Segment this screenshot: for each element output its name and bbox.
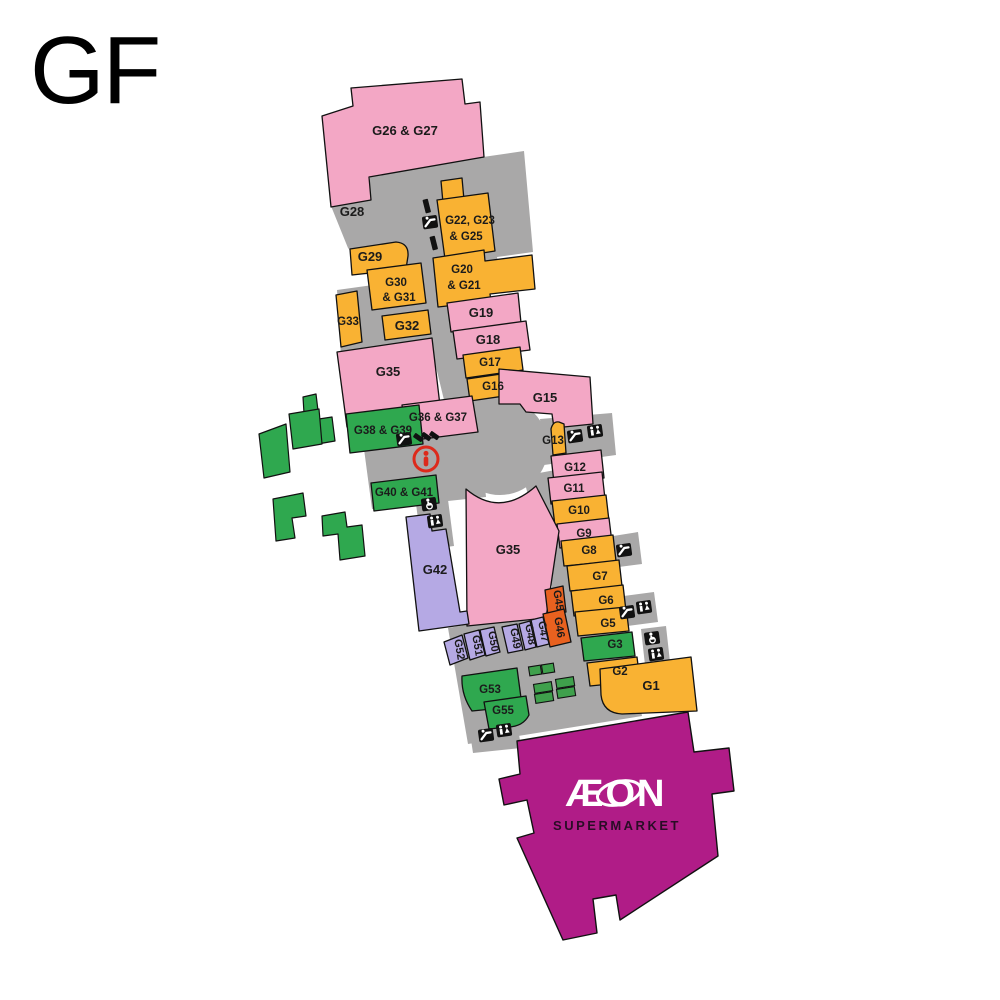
label-g7: G7 [592, 571, 607, 583]
label-g36-g37: G36 & G37 [409, 412, 467, 424]
aeon-subtitle: SUPERMARKET [553, 818, 681, 833]
label-g9: G9 [576, 528, 591, 540]
label-g3: G3 [607, 639, 622, 651]
restroom-icon [427, 514, 444, 529]
label-g42: G42 [423, 562, 448, 577]
floor-map: GF G26 & G27 G28 G22, G23 & G25 G29 G20 … [0, 0, 1000, 1000]
label-g12: G12 [564, 462, 586, 474]
landscape-shape [289, 409, 322, 449]
label-g29: G29 [358, 249, 383, 264]
info-icon [414, 447, 438, 471]
label-g35-upper: G35 [376, 364, 401, 379]
label-g26-g27: G26 & G27 [372, 123, 438, 138]
floorplan-page: GF G26 & G27 G28 G22, G23 & G25 G29 G20 … [0, 0, 1000, 1000]
label-g28: G28 [340, 204, 365, 219]
wheelchair-icon [421, 497, 438, 512]
label-g16: G16 [482, 381, 504, 393]
wheelchair-icon [644, 631, 661, 646]
label-g6: G6 [598, 595, 613, 607]
label-g38-g39: G38 & G39 [354, 425, 412, 437]
label-g32: G32 [395, 318, 420, 333]
landscape-shape [322, 512, 365, 560]
restroom-icon [636, 600, 653, 615]
label-g53: G53 [479, 684, 501, 696]
label-g22-g25-l1: G22, G23 [445, 215, 495, 227]
label-g20-g21-l2: & G21 [447, 280, 481, 292]
landscape-shape [273, 493, 306, 541]
label-g30-g31-l2: & G31 [382, 292, 416, 304]
label-g55: G55 [492, 705, 514, 717]
landscape-shape [259, 424, 290, 478]
escalator-icon [616, 543, 633, 558]
floor-label: GF [30, 17, 159, 124]
restroom-icon [496, 723, 513, 738]
label-g22-g25-l2: & G25 [449, 231, 483, 243]
kiosk[interactable] [541, 663, 554, 674]
escalator-icon [422, 215, 439, 230]
label-g5: G5 [600, 618, 616, 630]
label-g13: G13 [542, 435, 564, 447]
aeon-logo-text: ÆON [566, 773, 667, 815]
label-g2: G2 [612, 666, 627, 678]
label-g35-lower: G35 [496, 542, 521, 557]
label-g8: G8 [581, 545, 597, 557]
restroom-icon [587, 424, 604, 439]
label-g20-g21-l1: G20 [451, 264, 473, 276]
label-g33: G33 [337, 316, 359, 328]
label-g19: G19 [469, 305, 494, 320]
label-g17: G17 [479, 357, 501, 369]
label-g15: G15 [533, 390, 558, 405]
label-g11: G11 [563, 483, 585, 495]
label-g1: G1 [642, 678, 659, 693]
escalator-icon [619, 605, 636, 620]
kiosk[interactable] [528, 665, 541, 676]
escalator-icon [567, 429, 584, 444]
label-g10: G10 [568, 505, 590, 517]
label-g40-g41: G40 & G41 [375, 487, 434, 499]
escalator-icon [478, 728, 495, 743]
label-g18: G18 [476, 332, 501, 347]
label-g30-g31-l1: G30 [385, 277, 407, 289]
restroom-icon [648, 647, 665, 662]
